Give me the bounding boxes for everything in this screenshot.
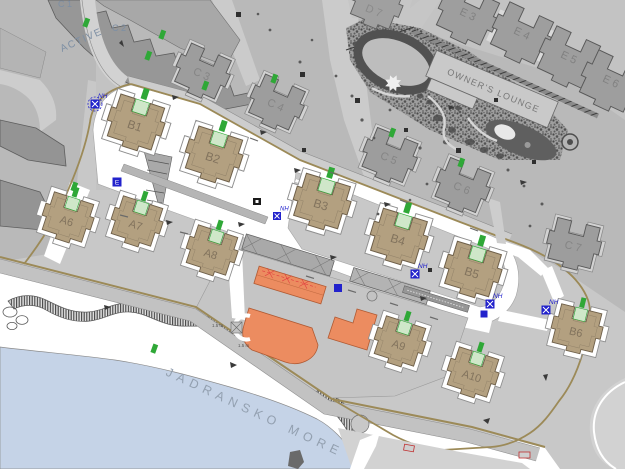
svg-text:1.5 m: 1.5 m	[238, 343, 250, 348]
svg-text:NH: NH	[493, 293, 503, 300]
svg-text:C 1: C 1	[58, 0, 72, 9]
svg-text:NH: NH	[280, 207, 289, 213]
svg-text:1.5 m: 1.5 m	[212, 323, 224, 328]
svg-text:C 2: C 2	[112, 23, 126, 33]
svg-text:E: E	[115, 180, 120, 187]
svg-text:NH: NH	[98, 93, 108, 100]
svg-text:NH: NH	[418, 263, 428, 270]
svg-text:NH: NH	[549, 299, 559, 306]
